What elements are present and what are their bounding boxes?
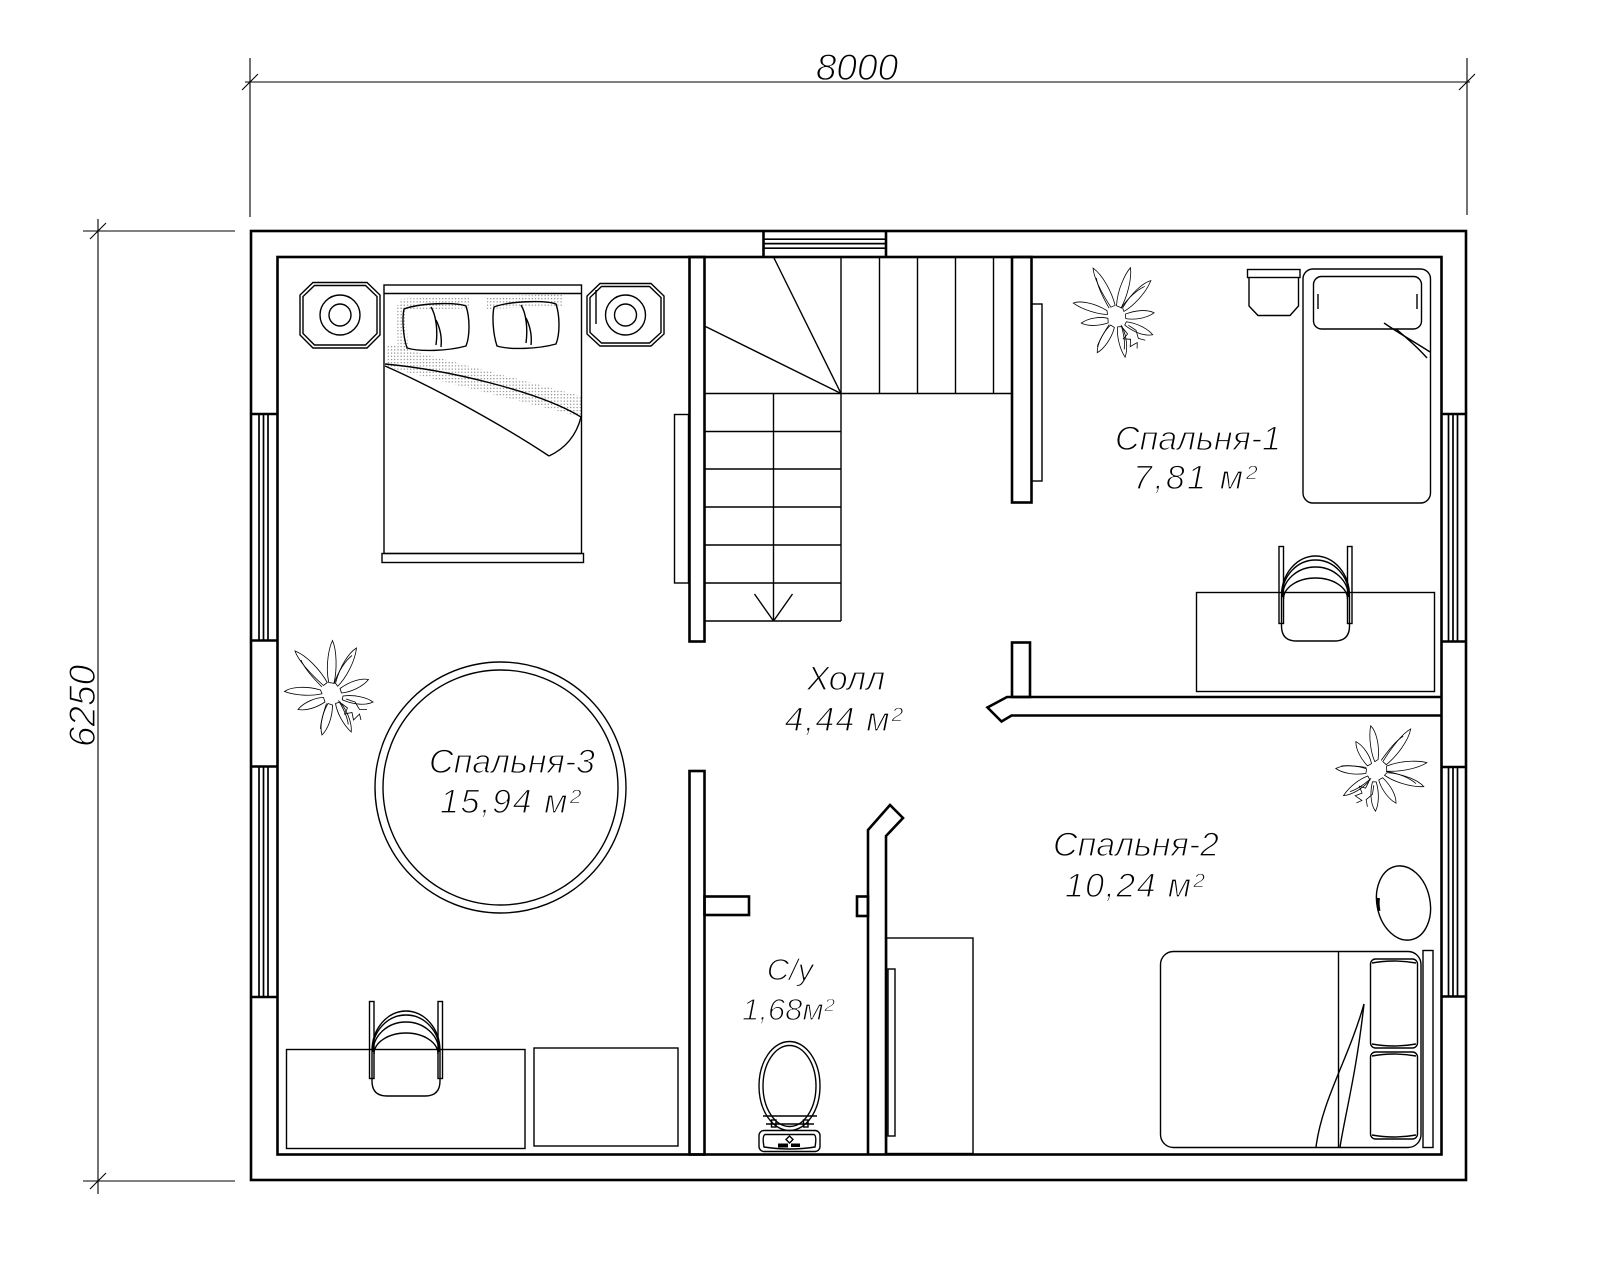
- svg-text:Спальня-3: Спальня-3: [429, 743, 595, 781]
- svg-text:Спальня-1: Спальня-1: [1115, 420, 1281, 458]
- svg-text:4,44 м²: 4,44 м²: [785, 701, 904, 739]
- svg-text:Холл: Холл: [806, 660, 885, 698]
- svg-text:Спальня-2: Спальня-2: [1053, 826, 1219, 864]
- svg-text:8000: 8000: [816, 47, 899, 88]
- svg-text:1,68м²: 1,68м²: [742, 992, 836, 1027]
- svg-text:6250: 6250: [62, 664, 103, 747]
- svg-text:10,24 м²: 10,24 м²: [1065, 867, 1206, 905]
- svg-text:С/у: С/у: [767, 952, 816, 987]
- svg-text:7,81 м²: 7,81 м²: [1133, 459, 1259, 497]
- svg-text:15,94 м²: 15,94 м²: [440, 783, 582, 821]
